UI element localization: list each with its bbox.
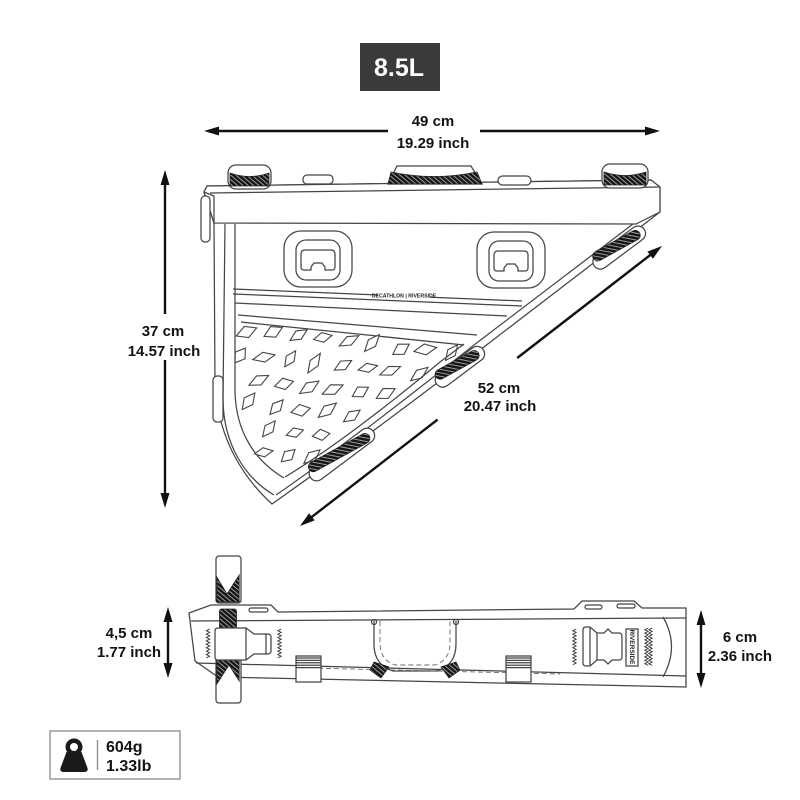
svg-text:52 cm: 52 cm [478, 380, 521, 397]
svg-text:1.77 inch: 1.77 inch [97, 644, 161, 661]
svg-text:37 cm: 37 cm [142, 323, 185, 340]
svg-text:6 cm: 6 cm [723, 629, 757, 646]
svg-text:20.47 inch: 20.47 inch [464, 398, 537, 415]
svg-text:49 cm: 49 cm [412, 113, 455, 130]
svg-text:14.57 inch: 14.57 inch [128, 343, 201, 360]
svg-text:8.5L: 8.5L [374, 54, 424, 82]
svg-text:2.36 inch: 2.36 inch [708, 648, 772, 665]
svg-text:4,5 cm: 4,5 cm [106, 625, 153, 642]
svg-text:604g: 604g [106, 739, 142, 756]
svg-text:1.33lb: 1.33lb [106, 758, 152, 775]
svg-text:RIVERSIDE: RIVERSIDE [628, 629, 635, 665]
svg-text:19.29 inch: 19.29 inch [397, 135, 470, 152]
svg-text:DECATHLON | RIVERSIDE: DECATHLON | RIVERSIDE [372, 294, 437, 300]
